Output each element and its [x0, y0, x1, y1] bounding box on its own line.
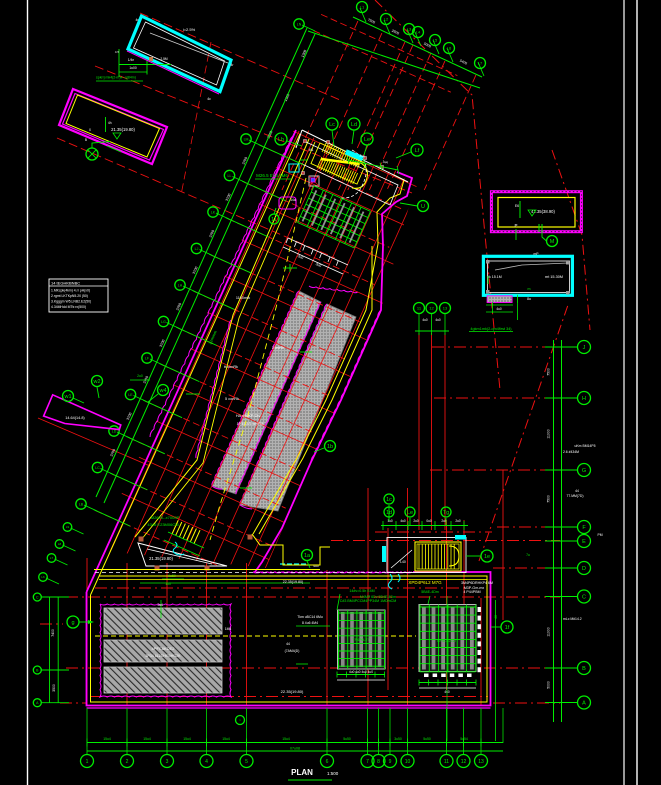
svg-text:11000: 11000	[547, 429, 551, 438]
svg-text:4 P44PBM: 4 P44PBM	[463, 590, 480, 594]
svg-text:E6: E6	[515, 204, 519, 208]
svg-text:2u0: 2u0	[137, 374, 143, 378]
svg-text:Ld: Ld	[351, 122, 357, 128]
svg-text:14 tEGHKBNBC: 14 tEGHKBNBC	[51, 281, 80, 286]
svg-text:11000: 11000	[547, 627, 551, 636]
svg-text:g: g	[71, 620, 74, 626]
svg-text:spkrrj mk4(2-m)4--q(84m): spkrrj mk4(2-m)4--q(84m)	[96, 76, 136, 80]
svg-text:Le: Le	[364, 137, 370, 143]
svg-text:Lc: Lc	[329, 122, 335, 128]
svg-text:L1: L1	[360, 4, 365, 9]
svg-text:mP: mP	[533, 252, 539, 256]
svg-text:13: 13	[478, 759, 484, 765]
svg-text:5u50: 5u50	[343, 737, 351, 741]
svg-text:8 4u6 4M4: 8 4u6 4M4	[302, 621, 318, 625]
svg-text:8: 8	[377, 759, 380, 765]
svg-text:J: J	[583, 345, 586, 351]
svg-text:(7AM4(D): (7AM4(D)	[285, 649, 300, 653]
svg-text:2 mfRk: 2 mfRk	[272, 346, 284, 350]
svg-text:1a: 1a	[304, 553, 311, 559]
svg-text:PLAN: PLAN	[291, 768, 313, 777]
svg-text:C: C	[582, 595, 586, 601]
svg-text:3.Kgggm W5.LNB2.E2(50): 3.Kgggm W5.LNB2.E2(50)	[51, 300, 91, 304]
svg-text:2u0: 2u0	[455, 519, 461, 523]
svg-text:8u: 8u	[527, 297, 531, 301]
svg-text:D: D	[582, 566, 586, 572]
svg-text:4u0: 4u0	[400, 519, 406, 523]
svg-text:2: 2	[126, 759, 129, 765]
svg-text:LN: LN	[297, 22, 302, 26]
svg-text:21.35(19.80): 21.35(19.80)	[111, 127, 135, 132]
svg-text:LE: LE	[128, 393, 133, 397]
svg-text:1u00: 1u00	[129, 66, 137, 70]
svg-text:1.MKcpk(4km) 4.rr pH(x0): 1.MKcpk(4km) 4.rr pH(x0)	[51, 289, 90, 293]
svg-text:P: P	[514, 223, 517, 228]
svg-text:Lf: Lf	[415, 148, 420, 154]
svg-text:E: E	[582, 539, 586, 545]
svg-text:HA d46KP-DN: HA d46KP-DN	[236, 414, 261, 418]
svg-text:4u0: 4u0	[496, 307, 502, 311]
svg-text:9: 9	[389, 759, 392, 765]
svg-text:m: m	[528, 287, 531, 291]
svg-text:4gkm1mk(2-qm4first 34): 4gkm1mk(2-qm4first 34)	[470, 327, 512, 331]
svg-text:Tg: Tg	[443, 510, 449, 516]
svg-text:L3: L3	[407, 26, 412, 31]
svg-text:w1: w1	[63, 394, 71, 400]
svg-text:15u4: 15u4	[282, 737, 290, 741]
svg-text:22.35(19.80): 22.35(19.80)	[283, 580, 303, 584]
svg-text:1P44.43 mHPM: 1P44.43 mHPM	[237, 422, 264, 426]
svg-text:LM: LM	[244, 137, 249, 141]
svg-text:1b: 1b	[327, 444, 333, 450]
svg-text:LC: LC	[95, 466, 100, 470]
svg-text:mt 15.30M: mt 15.30M	[545, 275, 563, 279]
svg-text:2.5M: 2.5M	[160, 57, 168, 61]
svg-text:G: G	[582, 468, 586, 474]
svg-text:1e: 1e	[484, 554, 490, 560]
svg-text:1f: 1f	[505, 625, 510, 631]
svg-text:A: A	[582, 701, 586, 707]
svg-text:7400: 7400	[51, 629, 55, 637]
svg-text:M: M	[550, 239, 555, 245]
svg-text:4u0 4u0 4u0 4u0: 4u0 4u0 4u0 4u0	[349, 670, 373, 674]
svg-text:5B4E-4Dm: 5B4E-4Dm	[421, 590, 439, 594]
svg-text:L6: L6	[41, 575, 45, 579]
svg-text:15u4: 15u4	[143, 737, 151, 741]
svg-text:LJ: LJ	[195, 247, 199, 251]
svg-text:L9: L9	[66, 525, 70, 529]
svg-text:14a: 14a	[290, 198, 296, 202]
svg-text:U: U	[421, 204, 425, 210]
svg-text:1u4: 1u4	[157, 603, 163, 607]
svg-text:1M4: 1M4	[225, 627, 232, 631]
svg-text:XPD4P6L2 M7G: XPD4P6L2 M7G	[408, 580, 442, 585]
svg-text:2.rgmt LKTKpN5.20 (50): 2.rgmt LKTKpN5.20 (50)	[51, 294, 88, 298]
svg-text:15u4: 15u4	[103, 737, 111, 741]
svg-text:Le: Le	[407, 510, 413, 516]
svg-text:4PFC6KDE2: 4PFC6KDE2	[152, 646, 176, 651]
svg-text:L7: L7	[478, 60, 483, 65]
svg-text:22.35(19.80): 22.35(19.80)	[281, 689, 304, 694]
svg-text:4.5: 4.5	[115, 50, 120, 54]
svg-text:L2: L2	[384, 16, 389, 21]
svg-text:uKm BM14P5: uKm BM14P5	[575, 444, 596, 448]
svg-text:44: 44	[575, 489, 579, 493]
svg-text:w2: w2	[92, 379, 100, 385]
svg-text:L4: L4	[416, 29, 421, 34]
svg-text:46: 46	[494, 615, 498, 619]
svg-text:5u54: 5u54	[460, 737, 468, 741]
svg-text:0u0: 0u0	[426, 519, 432, 523]
svg-text:LB: LB	[79, 502, 84, 506]
svg-text:4u0: 4u0	[435, 318, 441, 322]
svg-text:1d: 1d	[386, 510, 392, 516]
svg-text:15u4: 15u4	[222, 737, 230, 741]
svg-text:5u50: 5u50	[423, 737, 431, 741]
svg-text:TP4P6L2T: TP4P6L2T	[352, 638, 370, 642]
svg-text:L40: L40	[400, 560, 406, 564]
svg-text:w4: w4	[158, 388, 166, 394]
svg-text:4: 4	[205, 759, 208, 765]
svg-text:L5: L5	[433, 37, 438, 42]
svg-text:4h: 4h	[108, 121, 112, 125]
svg-text:LF: LF	[145, 356, 149, 360]
svg-text:5 conRk: 5 conRk	[225, 397, 239, 401]
svg-text:4u0: 4u0	[422, 318, 428, 322]
svg-text:4c: 4c	[207, 97, 211, 101]
svg-text:3M4P6DRHKP4 6M: 3M4P6DRHKP4 6M	[461, 581, 493, 585]
svg-text:7500: 7500	[547, 368, 551, 376]
svg-text:11: 11	[271, 217, 277, 223]
svg-text:4346 E23M06CM: 4346 E23M06CM	[147, 522, 178, 527]
svg-text:1c: 1c	[386, 497, 392, 503]
svg-text:14#v=0.5h E4M: 14#v=0.5h E4M	[349, 589, 374, 593]
svg-text:PM: PM	[597, 533, 602, 537]
svg-text:1: 1	[86, 759, 89, 765]
svg-text:3u50: 3u50	[394, 737, 402, 741]
svg-text:1u0: 1u0	[165, 582, 171, 586]
svg-text:3: 3	[166, 759, 169, 765]
svg-text:77.MM(7D): 77.MM(7D)	[567, 494, 584, 498]
svg-text:B: B	[582, 666, 586, 672]
svg-text:10: 10	[405, 759, 411, 765]
svg-text:1/4n: 1/4n	[128, 58, 135, 62]
svg-text:1u0: 1u0	[387, 519, 393, 523]
svg-text:12: 12	[461, 759, 467, 765]
svg-text:mLc M#14.2: mLc M#14.2	[563, 617, 582, 621]
svg-text:BP4C62L2T: BP4C62L2T	[437, 639, 457, 643]
svg-text:7u: 7u	[526, 553, 530, 557]
svg-text:M1: M1	[309, 148, 314, 152]
svg-text:LG: LG	[161, 320, 166, 324]
svg-text:B: B	[85, 138, 87, 142]
svg-text:44: 44	[286, 642, 290, 646]
svg-text:LK: LK	[211, 210, 216, 214]
svg-text:7: 7	[366, 759, 369, 765]
svg-text:11: 11	[444, 759, 449, 765]
svg-text:L7: L7	[50, 556, 54, 560]
svg-text:1100mfk: 1100mfk	[236, 296, 250, 300]
svg-text:H: H	[582, 396, 586, 402]
svg-text:3P34 6L2DHG0HG2K: 3P34 6L2DHG0HG2K	[145, 654, 181, 658]
svg-text:Lb: Lb	[278, 137, 284, 143]
svg-text:7500: 7500	[547, 495, 551, 503]
svg-text:4.34MHdd MTtr.rx(500): 4.34MHdd MTtr.rx(500)	[51, 305, 86, 309]
svg-text:21.35(19.80): 21.35(19.80)	[149, 556, 173, 561]
svg-text:C#3 BM4PCCM4PP34M 1MDmCM: C#3 BM4PCCM4PP34M 1MDmCM	[340, 599, 397, 603]
svg-text:3500: 3500	[52, 684, 56, 692]
svg-text:1:500: 1:500	[327, 771, 339, 776]
svg-text:14.64(14.8): 14.64(14.8)	[65, 416, 85, 420]
svg-text:15u4: 15u4	[183, 737, 191, 741]
svg-text:6: 6	[326, 759, 329, 765]
svg-text:M26.5 E14.6M6: M26.5 E14.6M6	[256, 173, 288, 178]
svg-text:5: 5	[245, 759, 248, 765]
svg-text:i=2.5%: i=2.5%	[183, 27, 196, 32]
svg-text:LL: LL	[228, 174, 232, 178]
svg-text:12: 12	[429, 305, 434, 310]
svg-text:L8: L8	[58, 542, 62, 546]
svg-text:2.6 #434M: 2.6 #434M	[563, 450, 579, 454]
svg-text:13: 13	[443, 305, 448, 310]
svg-text:LH: LH	[178, 283, 183, 287]
svg-text:L6: L6	[447, 45, 452, 50]
svg-text:2u0: 2u0	[413, 519, 419, 523]
svg-text:07u08: 07u08	[290, 747, 300, 751]
svg-text:tt conRk: tt conRk	[224, 365, 238, 369]
svg-text:5000: 5000	[547, 681, 551, 689]
svg-text:tk 15.1M: tk 15.1M	[488, 275, 502, 279]
svg-text:M2600--x7000P: M2600--x7000P	[151, 515, 180, 520]
svg-text:Tkm uBC14 6Mu: Tkm uBC14 6Mu	[297, 615, 323, 619]
